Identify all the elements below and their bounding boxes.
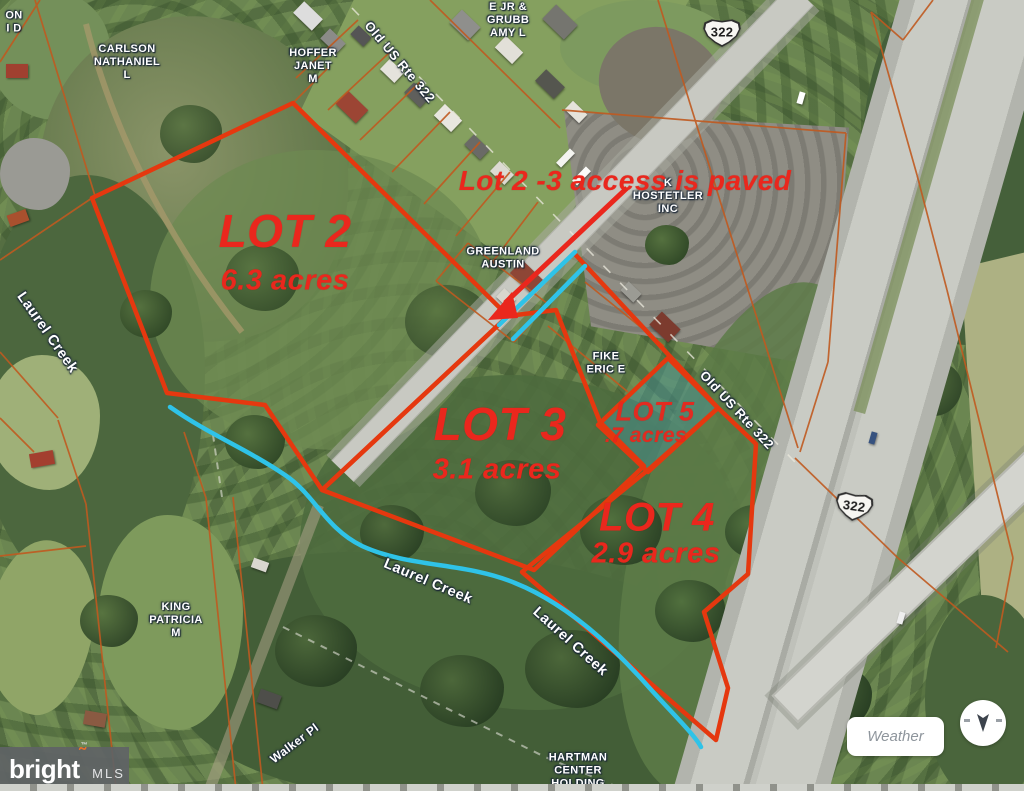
owner-label: GREENLANDAUSTIN <box>466 245 539 271</box>
map-overlay-svg <box>0 0 1024 791</box>
route-322-shield-south: 322 <box>832 489 876 525</box>
lot5-label: LOT 5 <box>615 397 694 428</box>
compass-tick-east <box>996 719 1002 722</box>
lot5-acres: .7 acres <box>605 424 687 448</box>
logo-suffix: MLS <box>92 766 125 781</box>
lot3-acres: 3.1 acres <box>433 454 562 487</box>
owner-label: KINGPATRICIAM <box>149 601 203 639</box>
route-322-shield-north: 322 <box>702 18 742 49</box>
lot2-acres: 6.3 acres <box>221 265 350 298</box>
owner-label: FIKEERIC E <box>586 350 625 376</box>
lot2-label: LOT 2 <box>219 204 352 258</box>
owner-label: E JR &GRUBBAMY L <box>487 1 529 39</box>
owner-label: ONI D <box>5 9 22 35</box>
logo-wordmark: bright˜™ <box>9 754 86 785</box>
lot4-acres: 2.9 acres <box>592 538 721 571</box>
satellite-map[interactable]: ONI D CARLSONNATHANIELL HOFFERJANETM E J… <box>0 0 1024 791</box>
lot3-label: LOT 3 <box>434 397 567 451</box>
owner-label: HOFFERJANETM <box>289 47 337 85</box>
compass-needle-icon <box>970 709 996 735</box>
compass-control[interactable] <box>960 700 1006 746</box>
parcel-lines <box>0 0 1013 790</box>
annotation-access-paved: Lot 2 -3 access is paved <box>459 165 792 197</box>
bottom-road-strip <box>0 784 1024 791</box>
owner-label: CARLSONNATHANIELL <box>94 43 160 81</box>
lot4-label: LOT 4 <box>599 496 715 541</box>
weather-button[interactable]: Weather <box>847 717 944 756</box>
